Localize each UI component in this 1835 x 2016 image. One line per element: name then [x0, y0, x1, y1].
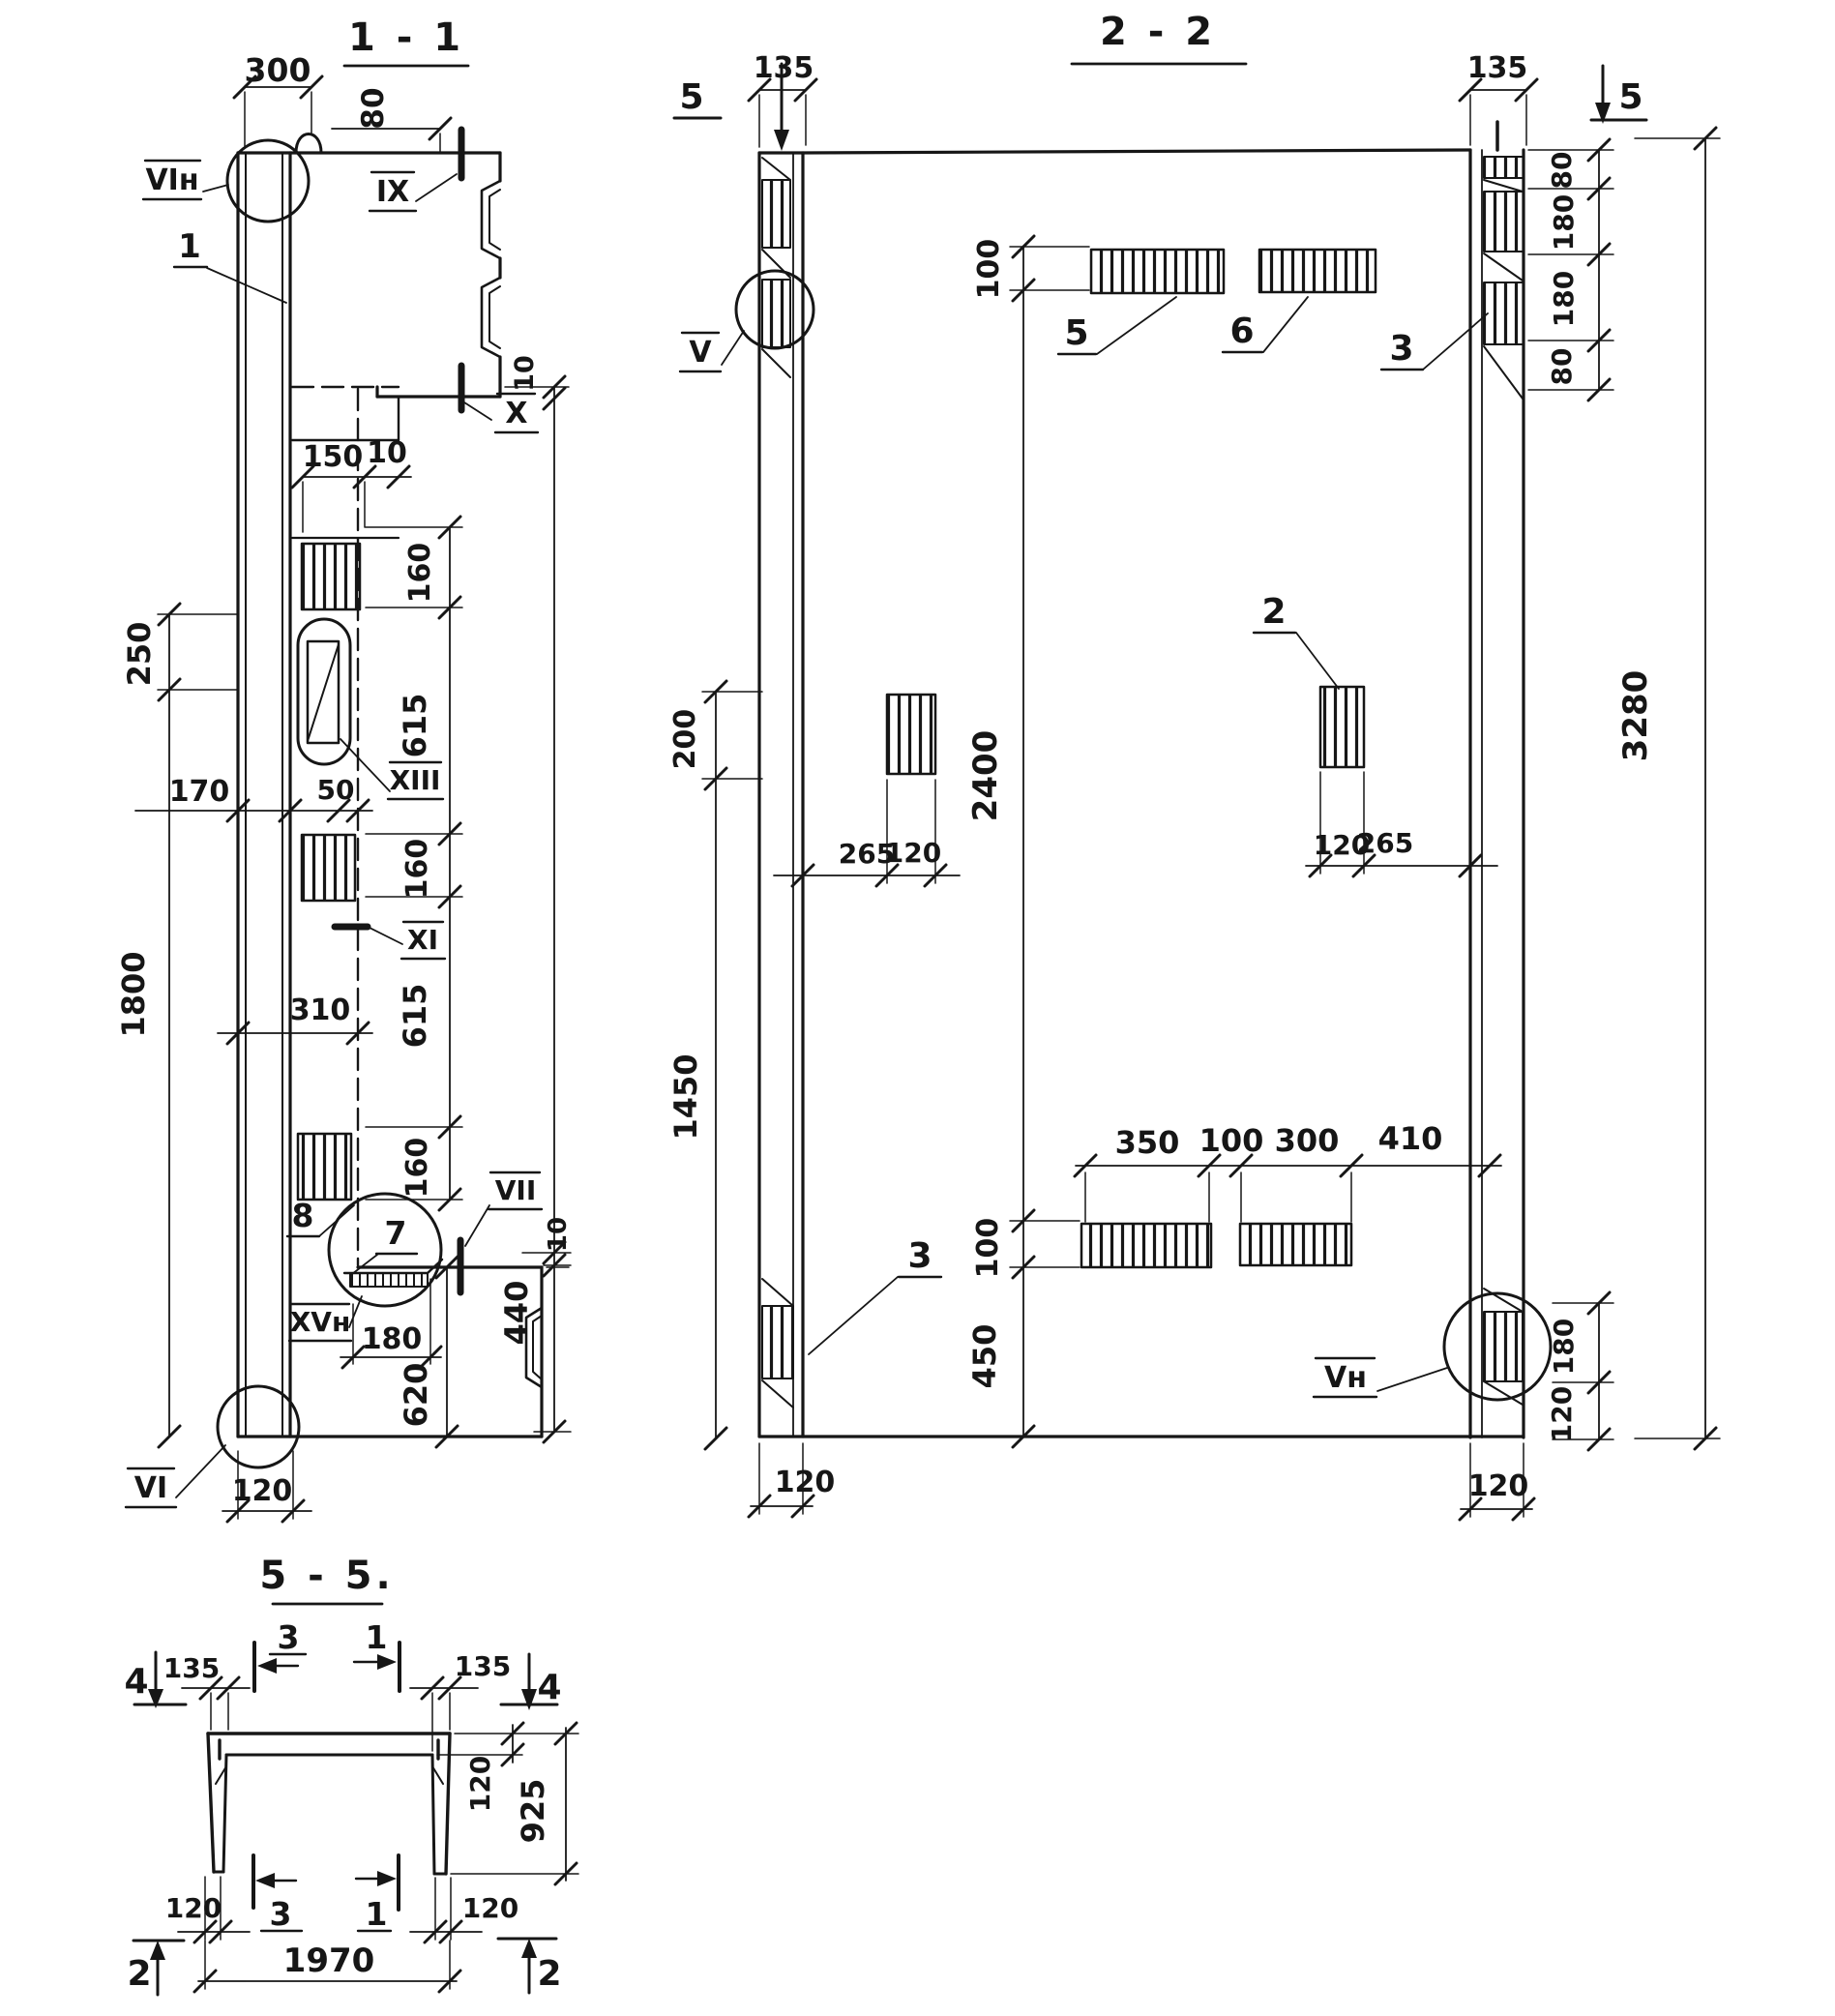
dim-section-1-1-250: 250 [121, 622, 158, 687]
channel-outline [208, 1734, 450, 1874]
part-section-2-2-6: 6 [1229, 311, 1254, 351]
rebar-hatch [1484, 157, 1524, 178]
dim-section-1-1-50: 50 [317, 774, 355, 806]
dim-section-5-5-135: 135 [455, 1650, 511, 1682]
dim-section-2-2-2400: 2400 [966, 730, 1005, 822]
dim-section-2-2-1450: 1450 [667, 1053, 704, 1140]
dim-section-2-2-180: 180 [1548, 271, 1580, 327]
title-section-1-1-1-1: 1 - 1 [348, 15, 464, 60]
dim-section-1-1-160: 160 [400, 1138, 434, 1199]
dim-section-1-1-170: 170 [169, 775, 230, 809]
rebar-hatch [1240, 1224, 1351, 1265]
dim-section-1-1-150: 150 [303, 440, 364, 474]
callout-section-1-1-VI: VI [134, 1471, 167, 1505]
dim-section-5-5-120: 120 [464, 1756, 496, 1812]
dim-section-1-1-160: 160 [400, 839, 434, 900]
part-section-2-2-5: 5 [1064, 313, 1088, 353]
rebar-hatch [1320, 687, 1364, 767]
callout-section-2-2-V: V [689, 336, 712, 370]
rebar-hatch [1484, 1312, 1523, 1381]
mark-section-5-5-4: 4 [124, 1662, 148, 1702]
mark-section-5-5-4: 4 [537, 1668, 561, 1707]
dim-section-2-2-135: 135 [754, 51, 814, 85]
part-section-1-1-8: 8 [292, 1197, 314, 1234]
dim-section-2-2-100: 100 [1199, 1122, 1264, 1159]
dim-section-2-2-300: 300 [1275, 1122, 1340, 1159]
dim-section-1-1-620: 620 [398, 1363, 434, 1428]
arrow-right-icon [377, 1654, 397, 1670]
mark-section-5-5-3: 3 [278, 1618, 300, 1656]
dim-section-1-1-1800: 1800 [115, 951, 152, 1037]
dim-section-1-1-10: 10 [367, 436, 407, 470]
arrow-down-icon [774, 130, 789, 151]
dim-section-1-1-300: 300 [245, 51, 311, 89]
labels-layer: 1 - 130080VIнIX1X1015010160615XIII250170… [115, 10, 1655, 1994]
mark-section-5-5-1: 1 [366, 1895, 388, 1933]
rebar-hatch [887, 695, 935, 774]
dim-section-1-1-440: 440 [498, 1281, 535, 1346]
callout-section-1-1-XVн: XVн [290, 1306, 351, 1338]
arrow-left-icon [257, 1658, 277, 1674]
part-section-2-2-3: 3 [907, 1236, 932, 1276]
rebar-hatch [302, 835, 355, 901]
dim-section-1-1-10: 10 [510, 355, 540, 392]
rebar-hatch [762, 280, 790, 347]
dim-section-5-5-135: 135 [163, 1652, 220, 1684]
dim-section-2-2-80: 80 [1546, 348, 1578, 386]
dim-section-1-1-120: 120 [232, 1474, 293, 1508]
dim-section-2-2-265: 265 [1357, 827, 1413, 859]
dim-section-2-2-3280: 3280 [1616, 670, 1655, 762]
dim-section-2-2-200: 200 [668, 709, 702, 770]
part-section-1-1-1: 1 [178, 227, 201, 266]
drawing-canvas: 1 - 130080VIнIX1X1015010160615XIII250170… [0, 0, 1835, 2016]
dim-section-1-1-10: 10 [544, 1217, 573, 1252]
part-section-2-2-3: 3 [1389, 329, 1413, 369]
mark-section-5-5-2: 2 [537, 1954, 561, 1994]
title-section-5-5-5-5.: 5 - 5. [259, 1554, 394, 1598]
rebar-hatch [762, 1306, 793, 1379]
rebar-hatch [1484, 282, 1524, 344]
callout-section-1-1-VII: VII [495, 1174, 537, 1206]
keyway-notch [482, 181, 500, 258]
part-section-1-1-7: 7 [385, 1214, 407, 1252]
mark-section-5-5-1: 1 [366, 1618, 388, 1656]
dim-section-2-2-410: 410 [1378, 1120, 1443, 1157]
dim-section-2-2-180: 180 [1548, 194, 1580, 251]
dim-section-2-2-135: 135 [1467, 51, 1528, 85]
callout-section-2-2-Vн: Vн [1324, 1361, 1367, 1395]
rebar-hatch [1091, 250, 1224, 293]
dim-section-2-2-100: 100 [971, 1218, 1005, 1279]
joint-strip [350, 1273, 428, 1287]
mark-section-2-2-5: 5 [679, 77, 703, 117]
title-section-2-2-2-2: 2 - 2 [1100, 10, 1216, 54]
dim-section-2-2-450: 450 [966, 1324, 1003, 1389]
callout-section-1-1-X: X [505, 397, 527, 430]
rebar-hatch [1081, 1224, 1211, 1267]
dim-section-1-1-615: 615 [397, 694, 433, 758]
arrow-up-icon [150, 1941, 165, 1960]
dim-section-5-5-120: 120 [462, 1892, 518, 1924]
dim-section-1-1-80: 80 [356, 87, 391, 129]
mark-section-2-2-5: 5 [1618, 77, 1643, 117]
rebar-hatch [1484, 192, 1524, 252]
keyway-notch [482, 278, 500, 357]
arrow-up-icon [521, 1939, 537, 1958]
dim-section-2-2-120: 120 [885, 837, 941, 869]
arrow-right-icon [377, 1871, 397, 1886]
rebar-hatch [762, 180, 790, 248]
arrow-left-icon [255, 1873, 275, 1888]
dim-section-1-1-160: 160 [403, 543, 437, 604]
rebar-hatch [302, 544, 360, 609]
dim-section-2-2-350: 350 [1115, 1124, 1180, 1161]
mark-section-5-5-3: 3 [270, 1895, 292, 1933]
dim-section-2-2-120: 120 [775, 1466, 836, 1499]
callout-section-1-1-XI: XI [407, 924, 438, 956]
dim-section-1-1-180: 180 [362, 1322, 423, 1356]
drawing-sheet: 1 - 130080VIнIX1X1015010160615XIII250170… [0, 0, 1835, 2016]
dim-section-1-1-310: 310 [290, 993, 351, 1027]
rebar-hatch [298, 1134, 351, 1200]
callout-section-1-1-IX: IX [376, 175, 409, 209]
dim-section-2-2-120: 120 [1546, 1386, 1578, 1442]
callout-section-1-1-XIII: XIII [390, 764, 441, 796]
dim-section-2-2-100: 100 [972, 239, 1006, 300]
rebar-hatch [1259, 250, 1376, 292]
part-section-2-2-2: 2 [1261, 592, 1286, 632]
dim-section-2-2-80: 80 [1546, 152, 1578, 190]
dim-section-5-5-925: 925 [515, 1779, 551, 1844]
lifting-hook [296, 134, 321, 154]
dim-section-2-2-180: 180 [1548, 1319, 1580, 1375]
mark-section-5-5-2: 2 [127, 1954, 151, 1994]
dim-section-2-2-120: 120 [1468, 1469, 1529, 1503]
detail-circle-VI [218, 1386, 299, 1468]
dim-section-1-1-615: 615 [397, 984, 433, 1049]
callout-section-1-1-VIн: VIн [145, 163, 198, 197]
arrow-down-icon [521, 1689, 537, 1710]
dim-section-5-5-1970: 1970 [283, 1942, 375, 1980]
dim-section-5-5-120: 120 [165, 1892, 222, 1924]
